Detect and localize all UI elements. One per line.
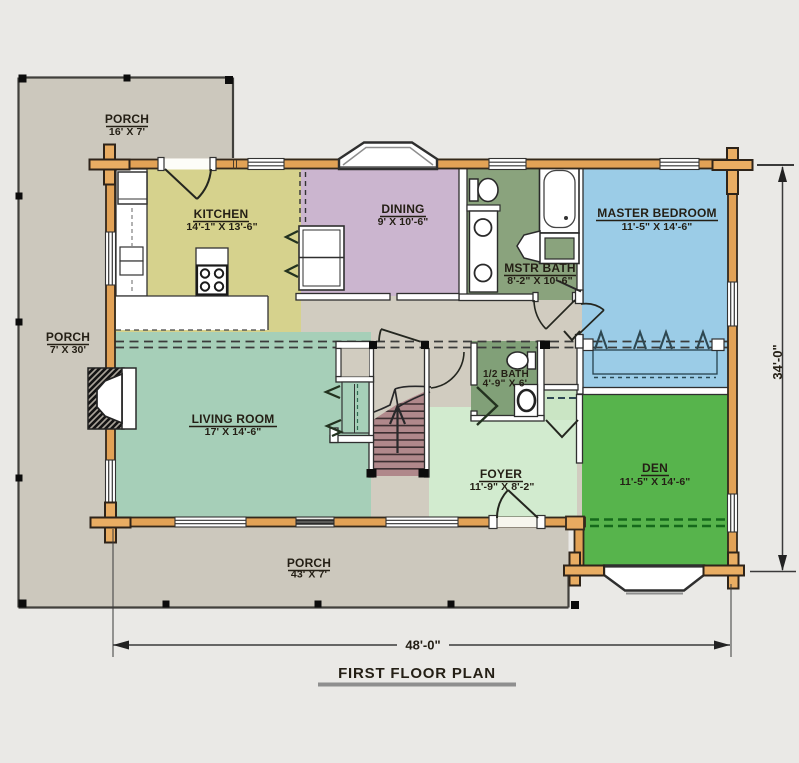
svg-text:4'-9" X 6': 4'-9" X 6' — [483, 379, 528, 390]
svg-text:DEN: DEN — [642, 461, 668, 475]
svg-text:14'-1" X 13'-6": 14'-1" X 13'-6" — [186, 221, 257, 233]
svg-text:11'-5" X 14'-6": 11'-5" X 14'-6" — [620, 476, 691, 488]
svg-text:PORCH: PORCH — [46, 330, 90, 344]
svg-text:7' X 30': 7' X 30' — [50, 344, 86, 356]
svg-text:MSTR BATH: MSTR BATH — [504, 261, 576, 275]
svg-text:8'-2" X 10'-6": 8'-2" X 10'-6" — [507, 275, 572, 287]
svg-text:48'-0": 48'-0" — [405, 638, 440, 653]
svg-text:11'-9" X 8'-2": 11'-9" X 8'-2" — [470, 481, 535, 493]
svg-text:KITCHEN: KITCHEN — [194, 207, 249, 221]
svg-text:17' X 14'-6": 17' X 14'-6" — [205, 426, 262, 438]
svg-text:FOYER: FOYER — [480, 467, 522, 481]
svg-text:MASTER BEDROOM: MASTER BEDROOM — [597, 206, 716, 220]
svg-text:9' X 10'-6": 9' X 10'-6" — [378, 216, 429, 228]
svg-text:43' X 7': 43' X 7' — [291, 569, 327, 581]
svg-text:16' X 7': 16' X 7' — [109, 126, 145, 138]
svg-text:11'-5" X 14'-6": 11'-5" X 14'-6" — [622, 221, 693, 233]
svg-text:DINING: DINING — [381, 202, 424, 216]
svg-text:34'-0": 34'-0" — [770, 344, 785, 379]
svg-text:LIVING ROOM: LIVING ROOM — [192, 412, 275, 426]
svg-text:PORCH: PORCH — [105, 112, 149, 126]
svg-text:FIRST FLOOR PLAN: FIRST FLOOR PLAN — [338, 665, 496, 682]
